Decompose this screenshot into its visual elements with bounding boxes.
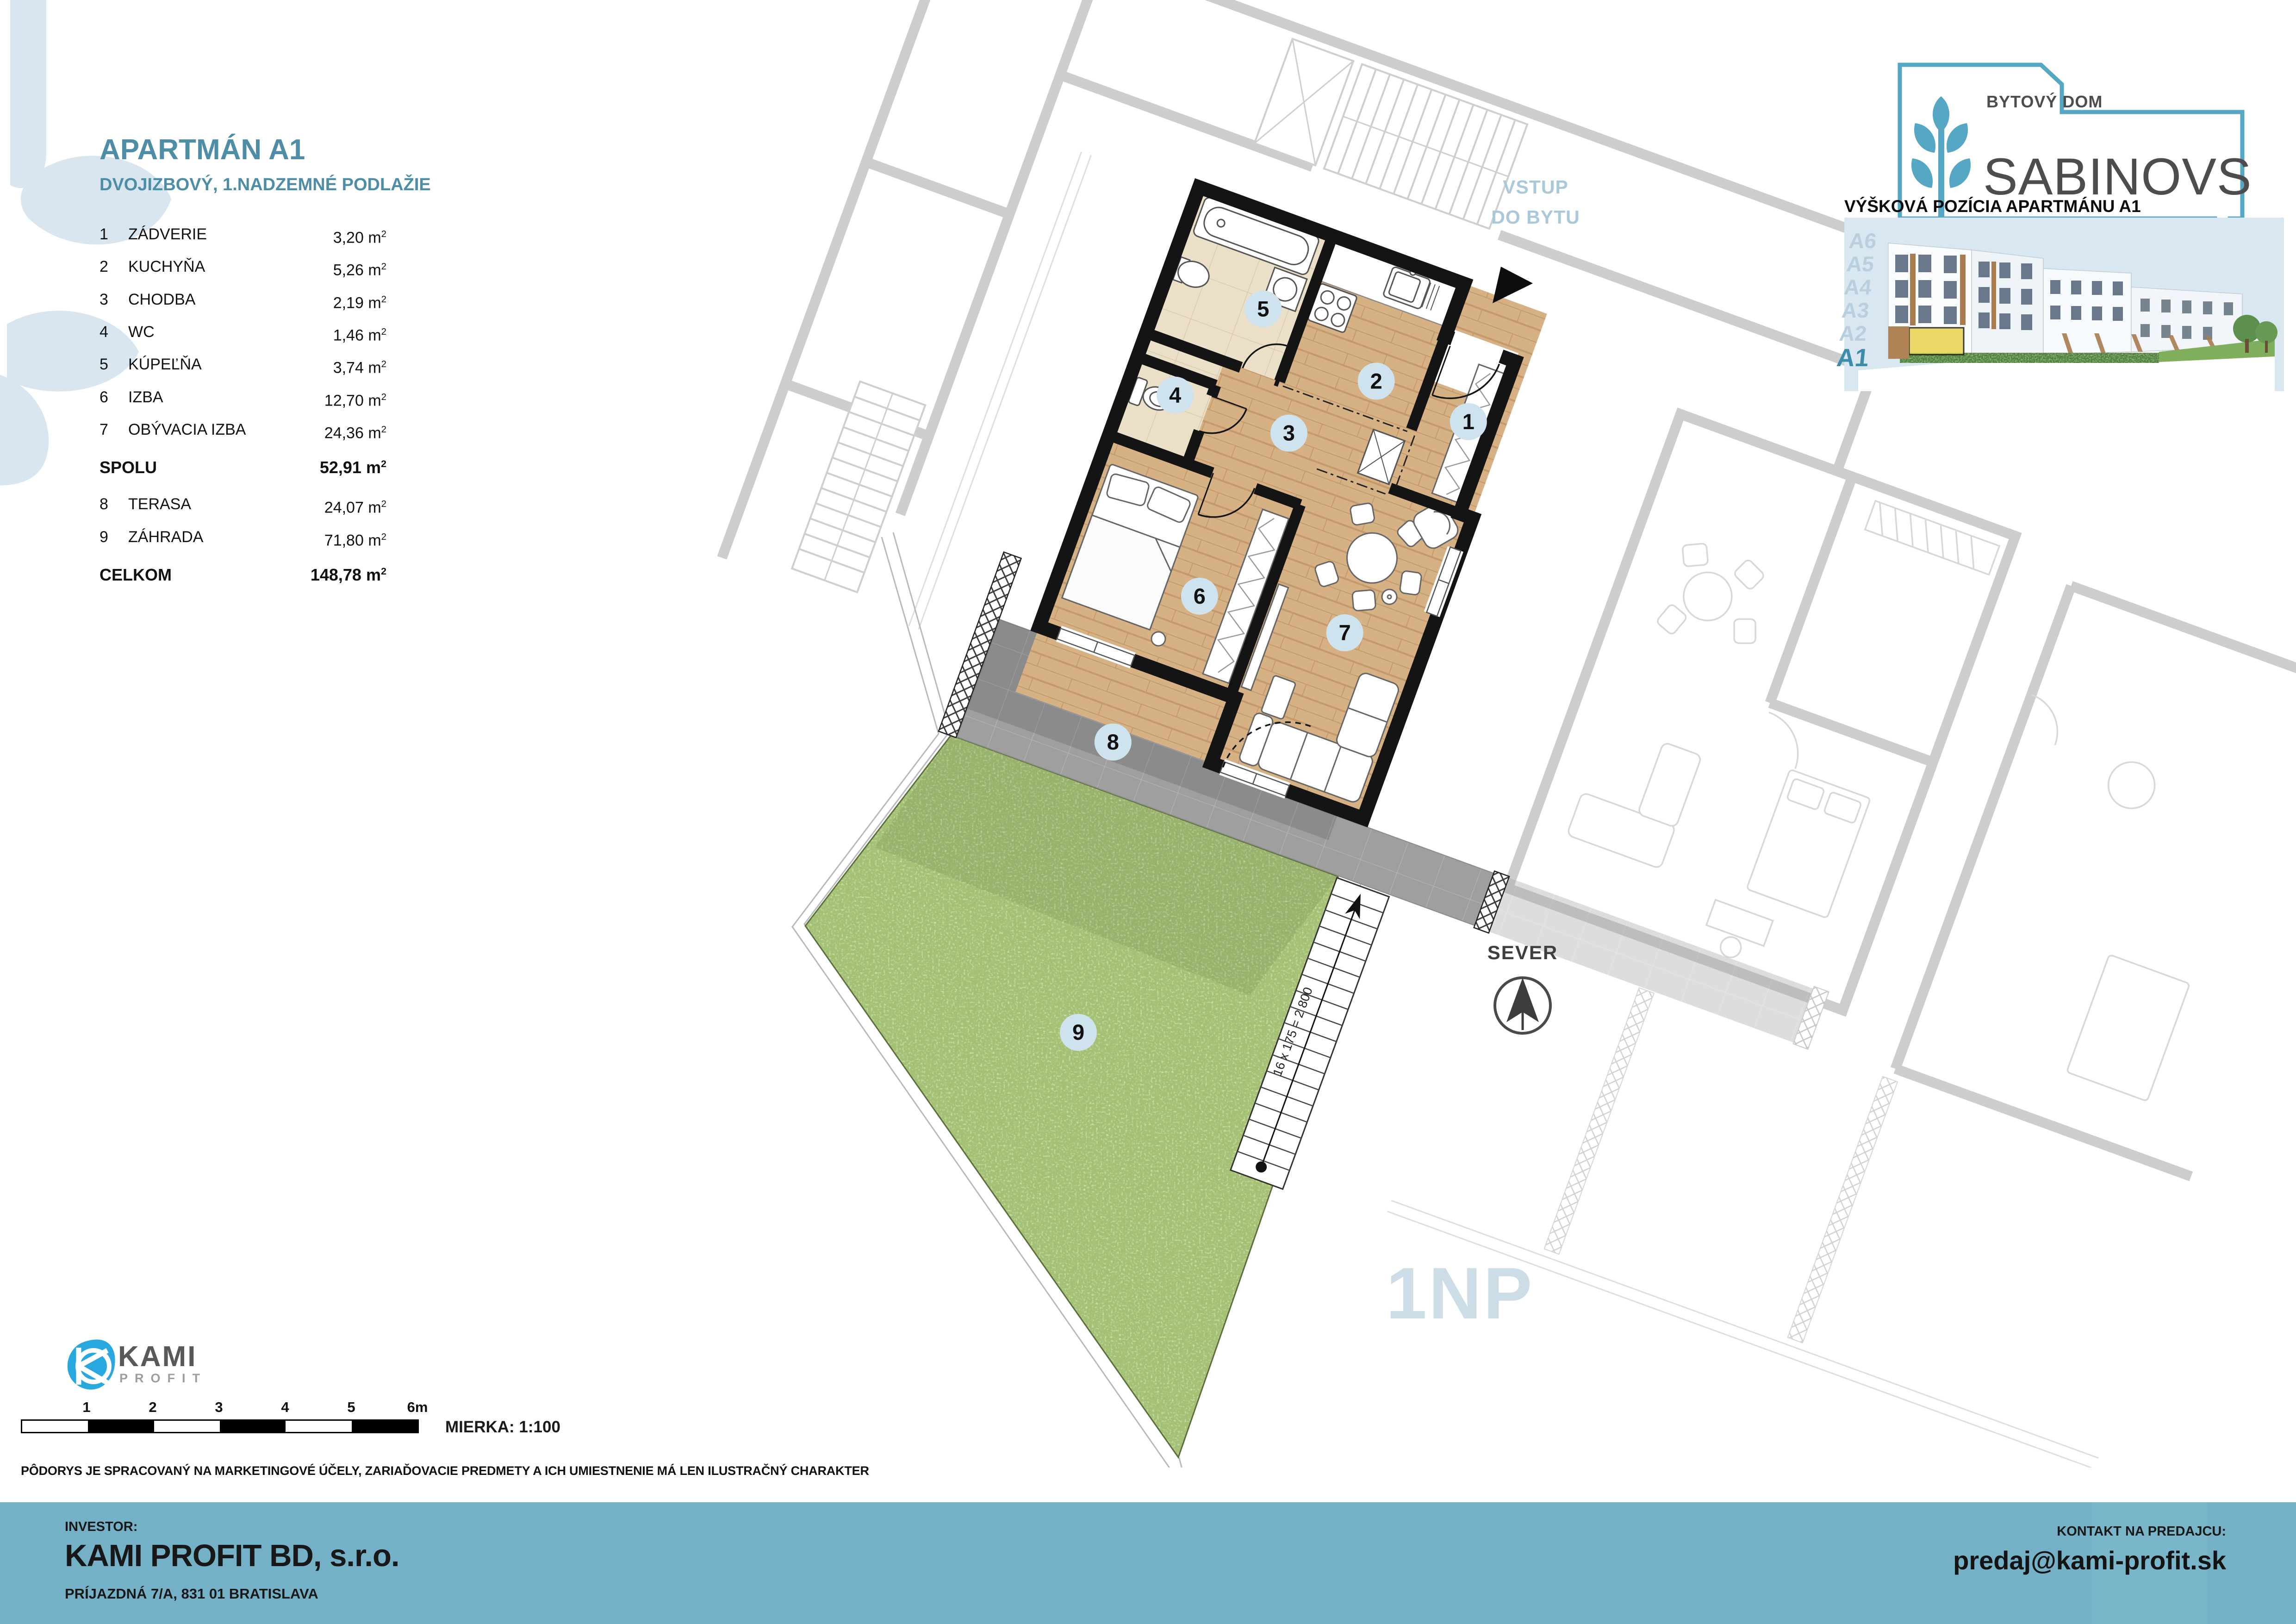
page-subtitle: DVOJIZBOVÝ, 1.NADZEMNÉ PODLAŽIE [100, 175, 431, 195]
table-row: 5KÚPEĽŇA3,74 m2 [100, 356, 386, 376]
tick-1: 1 [54, 1399, 119, 1416]
room-no: 4 [100, 324, 128, 344]
room-name: TERASA [128, 496, 324, 516]
badge-9: 9 [1072, 1020, 1084, 1044]
a1-highlight-box [1909, 328, 1964, 355]
room-no: 7 [100, 421, 128, 441]
brand-top-label: BYTOVÝ DOM [1986, 92, 2103, 111]
room-table: 1ZÁDVERIE3,20 m2 2KUCHYŇA5,26 m2 3CHODBA… [100, 226, 386, 603]
level-a4: A4 [1843, 275, 1901, 299]
room-area: 71,80 m2 [324, 529, 386, 549]
badge-4: 4 [1169, 383, 1181, 407]
scale-seg [220, 1421, 286, 1432]
badge-2: 2 [1370, 369, 1382, 393]
badge-9-group: 9 [1060, 1014, 1097, 1051]
table-row: 4WC1,46 m2 [100, 324, 386, 344]
badge-3: 3 [1283, 421, 1295, 445]
room-no: 9 [100, 529, 128, 549]
level-a3: A3 [1841, 299, 1898, 322]
contact-label: KONTAKT NA PREDAJCU: [2057, 1524, 2226, 1539]
room-area: 1,46 m2 [333, 324, 386, 344]
scale-seg [352, 1421, 417, 1432]
table-row: 7OBÝVACIA IZBA24,36 m2 [100, 421, 386, 441]
level-a6: A6 [1848, 229, 1906, 252]
disclaimer-text: PÔDORYS JE SPRACOVANÝ NA MARKETINGOVÉ ÚČ… [21, 1464, 869, 1478]
scalebar-ticks: 1 2 3 4 5 6m [21, 1399, 452, 1416]
level-a2: A2 [1838, 322, 1896, 345]
room-area: 5,26 m2 [333, 258, 386, 278]
scale-seg [88, 1421, 154, 1432]
table-row: 6IZBA12,70 m2 [100, 389, 386, 409]
scale-seg [154, 1421, 220, 1432]
page-title: APARTMÁN A1 [100, 133, 305, 166]
elevation-title: VÝŠKOVÁ POZÍCIA APARTMÁNU A1 [1844, 197, 2141, 216]
room-no: 6 [100, 389, 128, 409]
north-compass: SEVER [1487, 942, 1558, 1033]
floor-level-label: 1NP [1386, 1253, 1534, 1334]
level-a5: A5 [1846, 252, 1904, 275]
celkom-row: CELKOM148,78 m2 [100, 565, 386, 585]
investor-address: PRÍJAZDNÁ 7/A, 831 01 BRATISLAVA [65, 1586, 318, 1602]
table-row: 8TERASA24,07 m2 [100, 496, 386, 516]
room-no: 8 [100, 496, 128, 516]
room-name: ZÁHRADA [128, 529, 324, 549]
badge-1: 1 [1462, 409, 1475, 434]
room-name: KUCHYŇA [128, 258, 333, 278]
entry-label-line2: DO BYTU [1491, 206, 1580, 228]
spolu-row: SPOLU52,91 m2 [100, 458, 386, 477]
room-name: OBÝVACIA IZBA [128, 421, 324, 441]
room-no: 1 [100, 226, 128, 246]
level-a1: A1 [1836, 345, 1894, 371]
room-area: 2,19 m2 [333, 291, 386, 311]
kami-sub: PROFIT [119, 1371, 207, 1386]
table-row: 9ZÁHRADA71,80 m2 [100, 529, 386, 549]
room-no: 5 [100, 356, 128, 376]
investor-label: INVESTOR: [65, 1519, 137, 1535]
building-elevation-render [1844, 218, 2284, 391]
room-area: 3,20 m2 [333, 226, 386, 246]
tick-6: 6m [385, 1399, 450, 1416]
badge-7: 7 [1339, 620, 1351, 645]
investor-company: KAMI PROFIT BD, s.r.o. [65, 1538, 399, 1574]
spolu-value: 52,91 m2 [320, 458, 386, 477]
elevation-panel [1844, 218, 2284, 391]
room-name: CHODBA [128, 291, 333, 311]
kami-name: KAMI [118, 1340, 197, 1373]
celkom-value: 148,78 m2 [311, 565, 386, 585]
room-name: ZÁDVERIE [128, 226, 333, 246]
entrance-arrow-icon [1493, 267, 1533, 303]
tick-5: 5 [319, 1399, 384, 1416]
room-area: 24,36 m2 [324, 421, 386, 441]
entry-label-line1: VSTUP [1503, 176, 1568, 198]
room-name: IZBA [128, 389, 324, 409]
room-area: 24,07 m2 [324, 496, 386, 516]
badge-6: 6 [1194, 584, 1206, 608]
room-name: WC [128, 324, 333, 344]
scale-seg [22, 1421, 88, 1432]
contact-email[interactable]: predaj@kami-profit.sk [1953, 1545, 2226, 1575]
badge-5: 5 [1257, 296, 1269, 321]
table-row: 2KUCHYŇA5,26 m2 [100, 258, 386, 278]
room-no: 2 [100, 258, 128, 278]
room-area: 12,70 m2 [324, 389, 386, 409]
tick-4: 4 [253, 1399, 317, 1416]
room-no: 3 [100, 291, 128, 311]
brochure-page: 16 x 175 = 2 800 [0, 0, 2296, 1624]
sabinovska-logo: BYTOVÝ DOM SABINOVSKÁ [1888, 56, 2254, 245]
tick-2: 2 [120, 1399, 185, 1416]
room-area: 3,74 m2 [333, 356, 386, 376]
table-row: 1ZÁDVERIE3,20 m2 [100, 226, 386, 246]
table-row: 3CHODBA2,19 m2 [100, 291, 386, 311]
scale-label: MIERKA: 1:100 [445, 1418, 560, 1437]
badge-8: 8 [1107, 730, 1119, 754]
room-name: KÚPEĽŇA [128, 356, 333, 376]
scale-seg [286, 1421, 351, 1432]
tick-3: 3 [187, 1399, 251, 1416]
scale-bar [21, 1419, 419, 1433]
north-label: SEVER [1487, 942, 1558, 963]
